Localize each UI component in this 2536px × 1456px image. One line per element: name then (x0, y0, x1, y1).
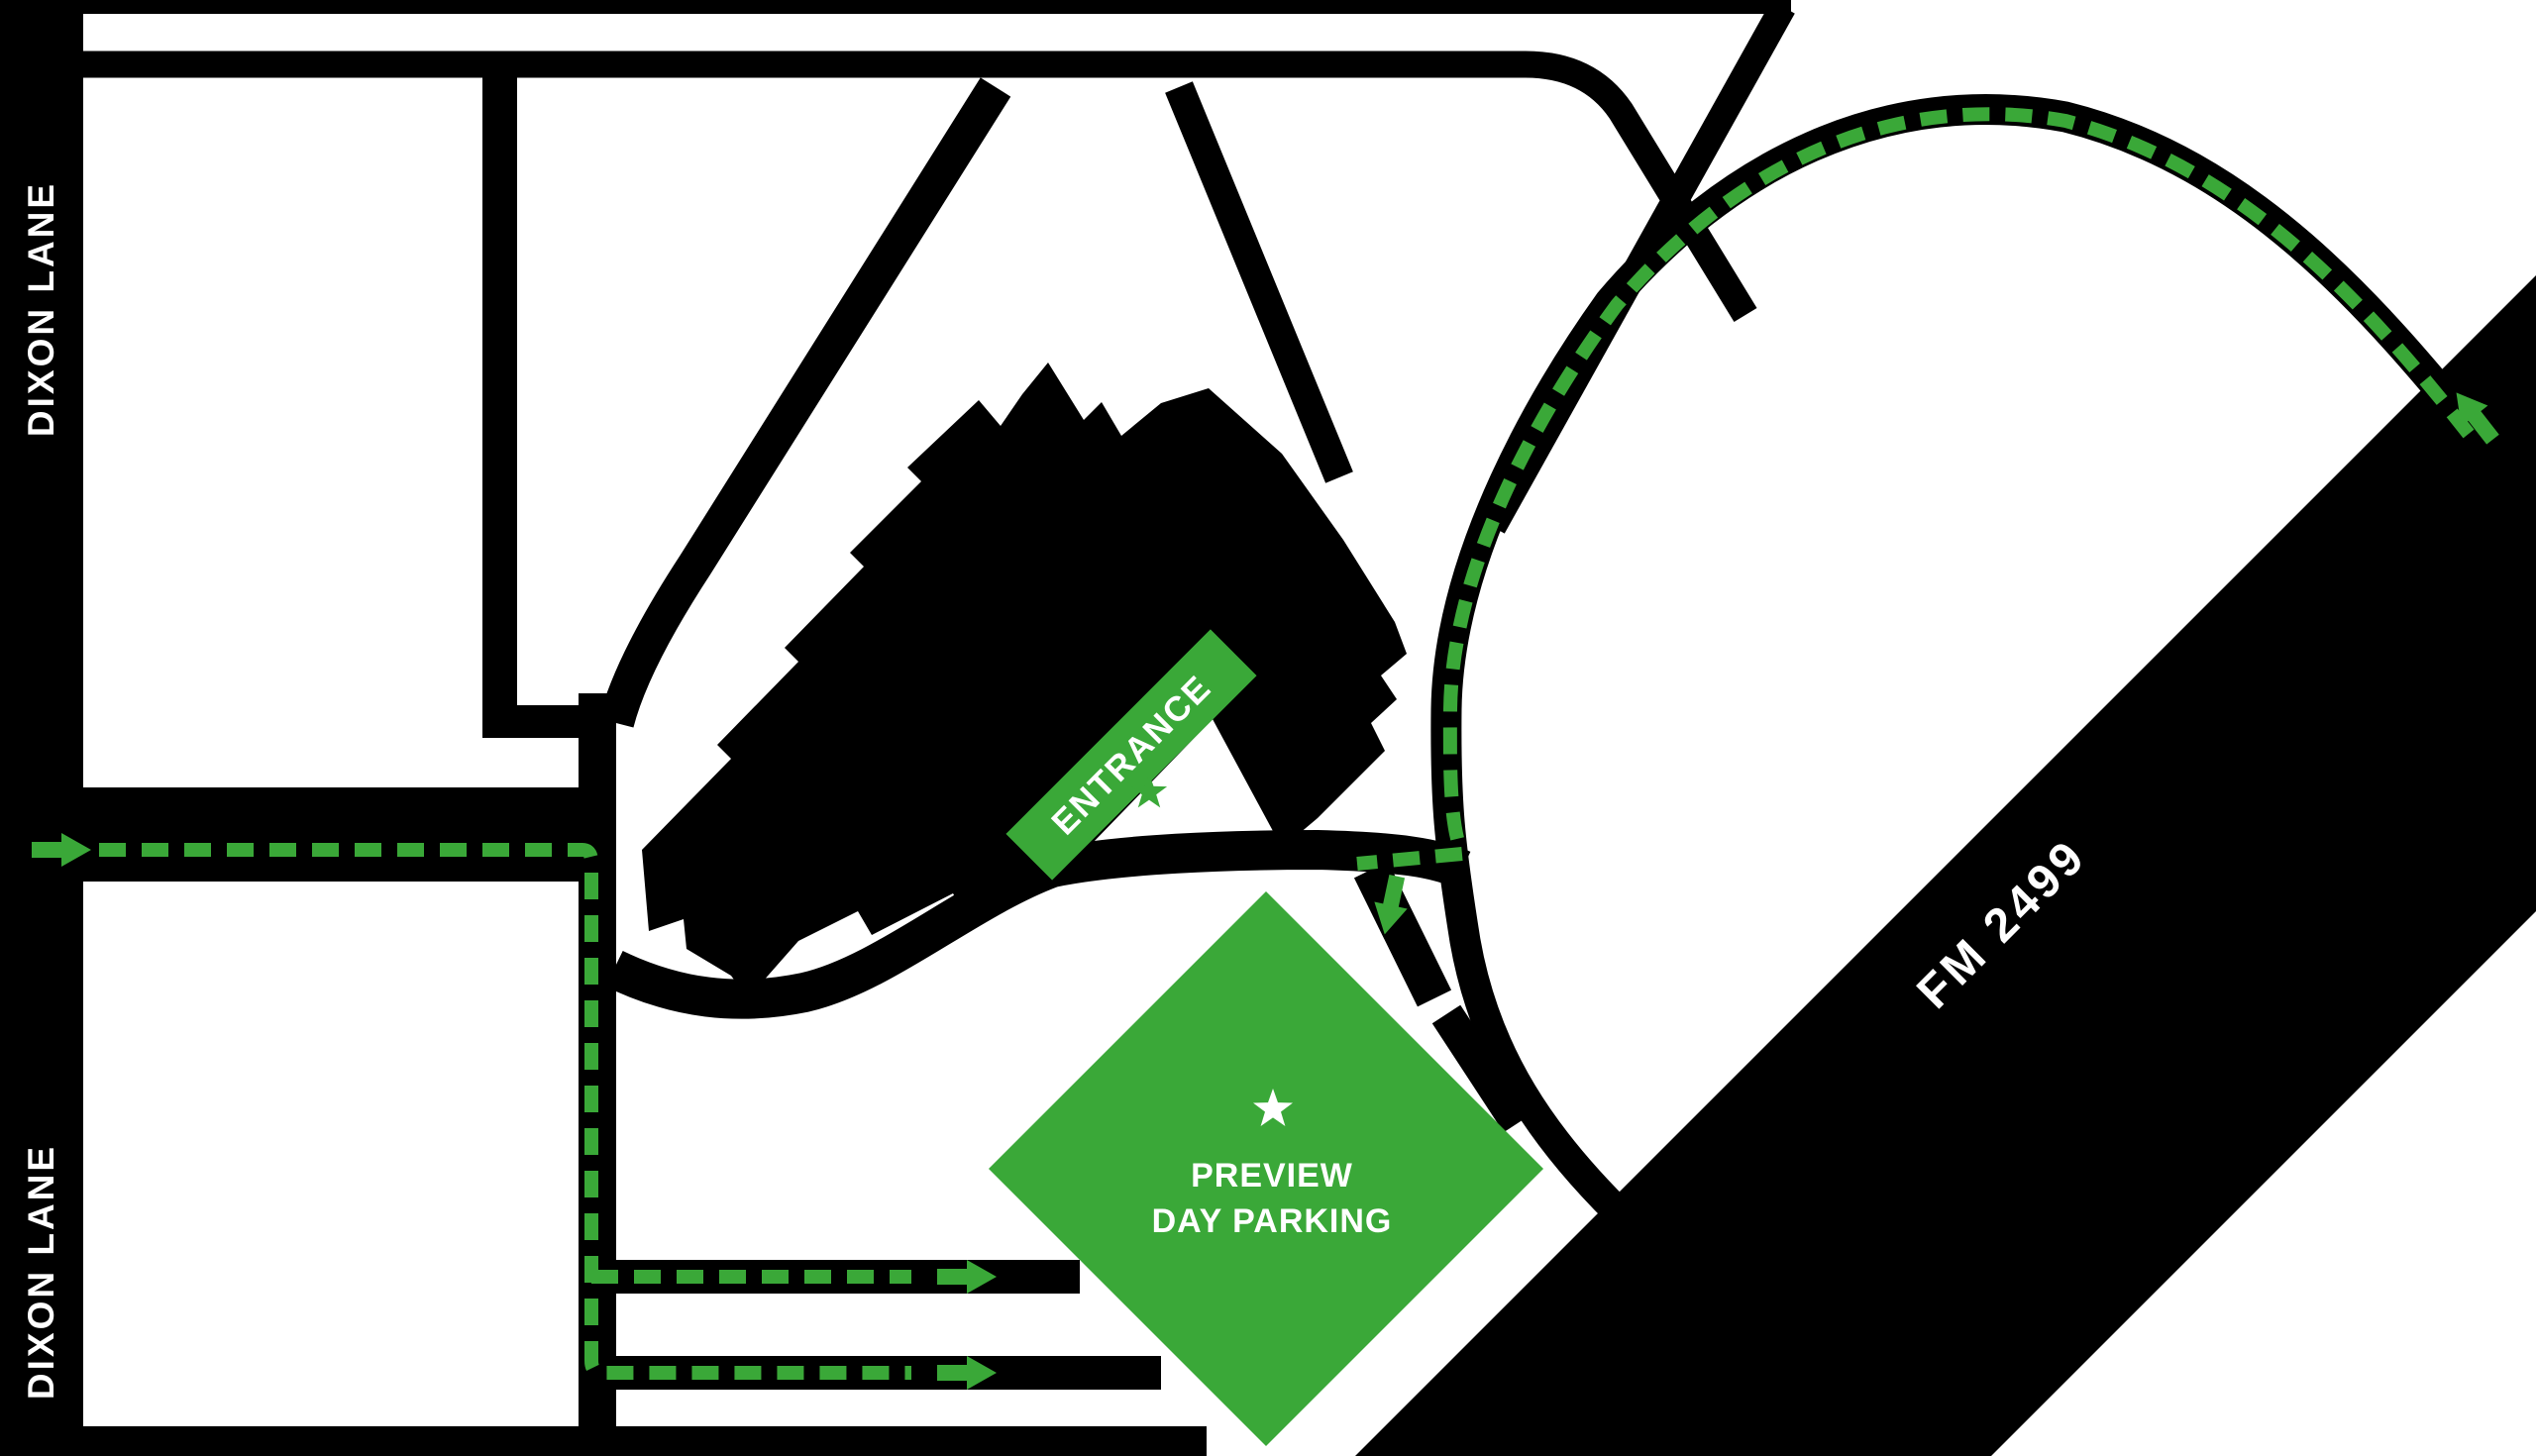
road-bottom (83, 1426, 1207, 1456)
dixon-lane-label-south: DIXON LANE (21, 1144, 61, 1400)
road-top-strip (0, 0, 1791, 14)
map-canvas: PREVIEW DAY PARKING ENTRANCE DIXON LANE … (0, 0, 2536, 1456)
road-vertical-stub (482, 52, 517, 721)
dixon-lane-label-north: DIXON LANE (21, 181, 61, 437)
road-parking-lane-1 (591, 1260, 1080, 1294)
parking-map: PREVIEW DAY PARKING ENTRANCE DIXON LANE … (0, 0, 2536, 1456)
parking-label-line1: PREVIEW (1191, 1157, 1353, 1195)
parking-label-line2: DAY PARKING (1152, 1202, 1393, 1240)
road-stub-jog (482, 705, 579, 738)
road-dixon-east-boulevard (83, 787, 616, 882)
